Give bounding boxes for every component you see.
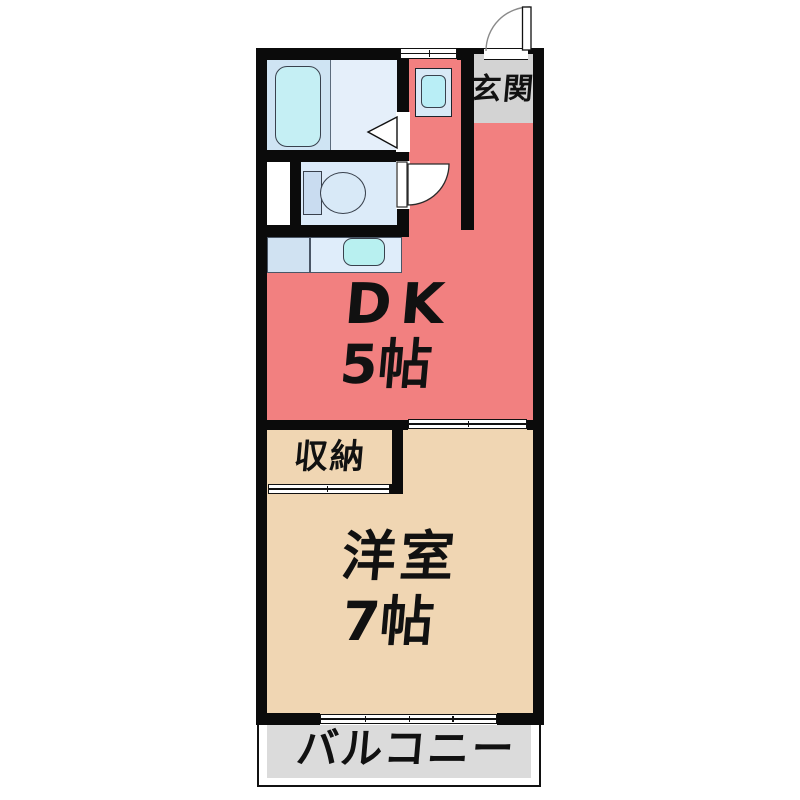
toilet-door-swing: [408, 164, 449, 205]
bathroom-door-triangle: [368, 117, 397, 148]
dk-size-label: 5帖: [338, 338, 434, 392]
entrance-label: 玄関: [470, 75, 537, 105]
western-room-name-label: 洋室: [340, 530, 461, 584]
closet-label: 収納: [293, 440, 368, 474]
dk-name-label: DK: [343, 277, 456, 333]
toilet-door-leaf: [397, 162, 407, 207]
entrance-door-leaf: [523, 7, 532, 50]
door-swing-overlay: [0, 0, 800, 800]
western-room-size-label: 7帖: [340, 595, 436, 649]
balcony-label: バルコニー: [295, 728, 518, 770]
floor-plan: 玄関 DK 5帖 収納 洋室 7帖 バルコニー: [0, 0, 800, 800]
